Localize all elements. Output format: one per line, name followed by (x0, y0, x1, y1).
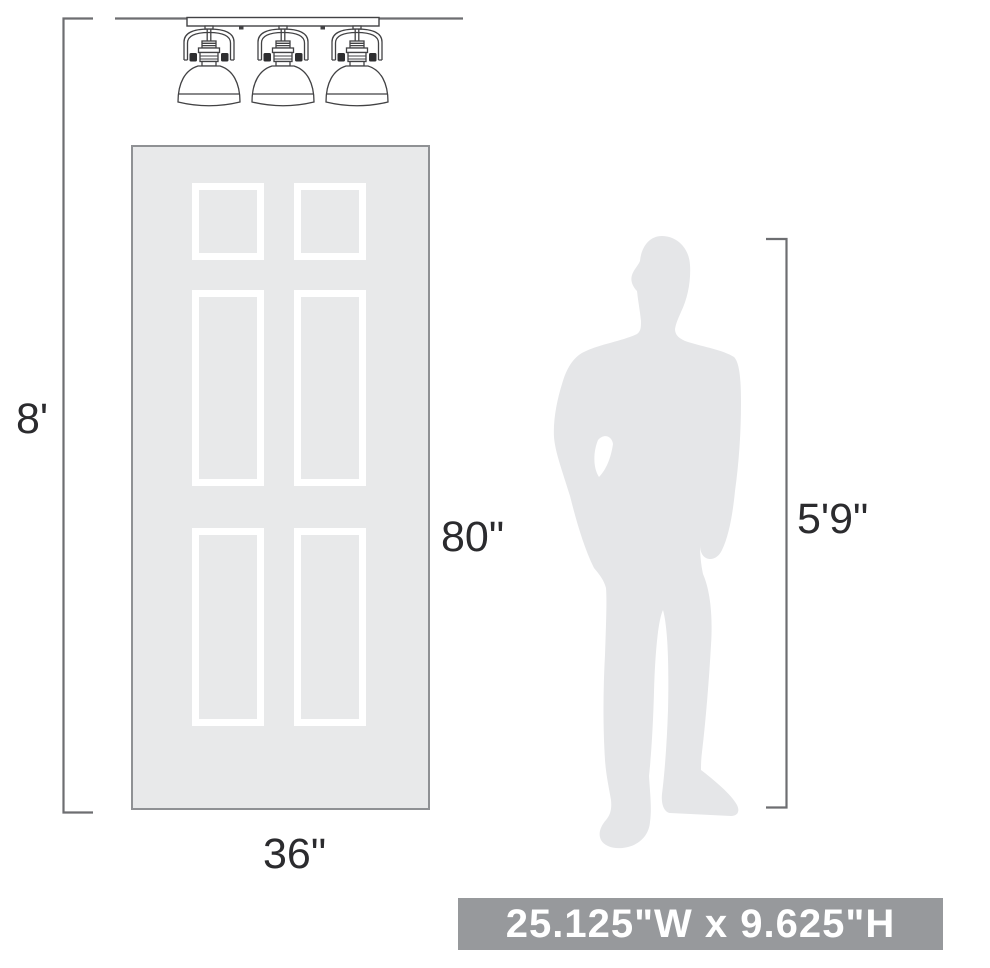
product-dimensions-text: 25.125"W x 9.625"H (506, 904, 895, 944)
product-dimensions-banner: 25.125"W x 9.625"H (458, 898, 943, 950)
diagram-linework (0, 0, 990, 968)
bar-screw (239, 26, 244, 30)
wall-height-bracket (64, 19, 94, 813)
dimension-diagram: 8' 80" 36" 5'9" 25.125"W x 9.625"H (0, 0, 990, 968)
person-height-bracket (766, 239, 787, 808)
vanity-lamp (252, 26, 314, 106)
door-width-label: 36" (263, 833, 326, 876)
fixture-mounting-bar (187, 18, 379, 27)
vanity-lamp (178, 26, 240, 106)
door-height-label: 80" (441, 516, 504, 559)
bar-screw (321, 26, 326, 30)
vanity-lamp (326, 26, 388, 106)
person-height-label: 5'9" (797, 498, 868, 541)
person-silhouette (554, 236, 741, 848)
vanity-light-fixture (178, 18, 388, 106)
wall-height-label: 8' (16, 398, 48, 441)
